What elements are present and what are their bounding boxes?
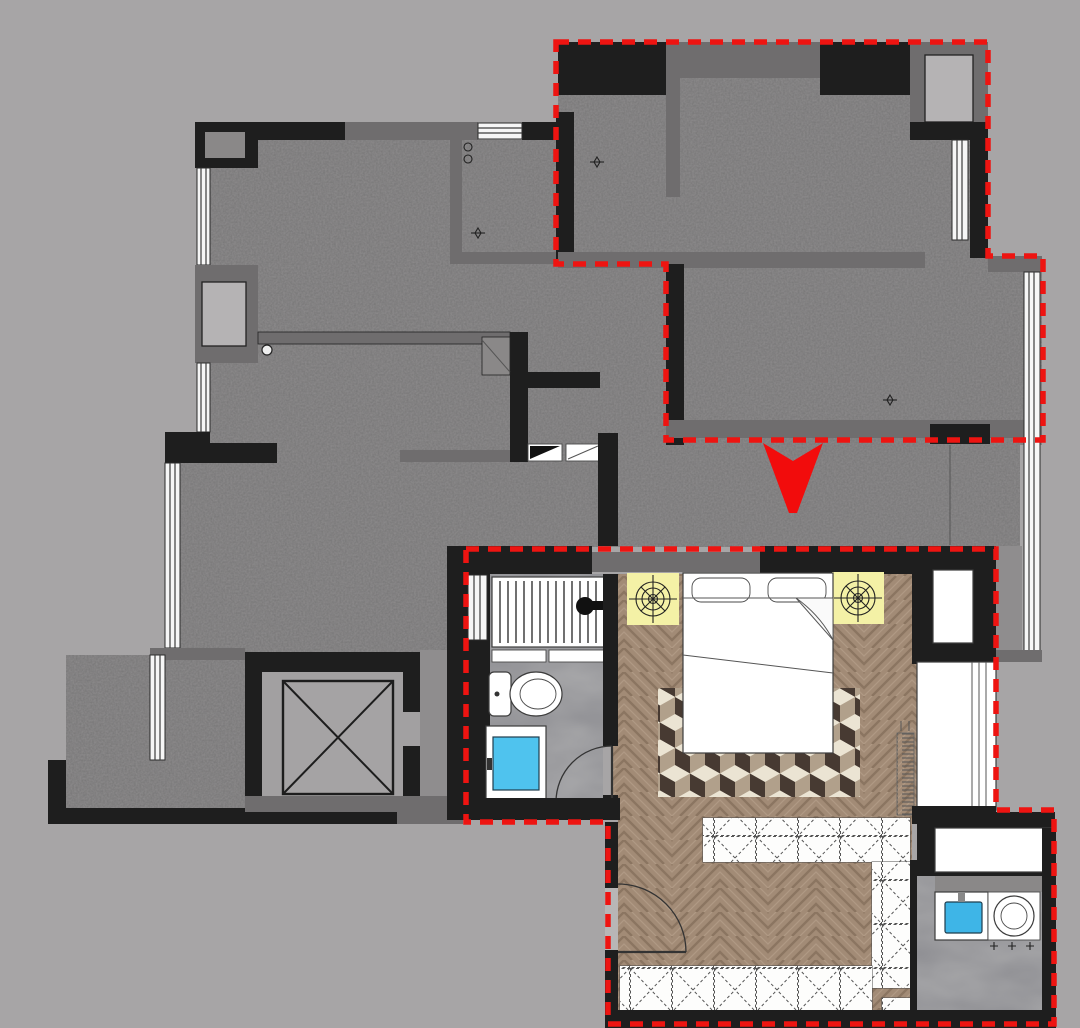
sliding-wardrobe (912, 648, 996, 824)
screenshot-stage: apartment-floor-plan-with-master-suite-d… (0, 0, 1080, 1028)
vanity-sink (945, 902, 982, 933)
ceiling-light-symbol (627, 573, 679, 625)
nightstand (933, 570, 973, 643)
shower-base (935, 828, 1052, 872)
towel-radiator (897, 721, 914, 815)
window-left-3 (165, 463, 180, 648)
window-left-4 (150, 655, 165, 760)
shower-head-icon (576, 597, 594, 615)
window-right-bay (1024, 272, 1040, 652)
window-right-top (952, 140, 968, 240)
window-top-foyer (478, 123, 522, 139)
door-pivot-icon (262, 345, 272, 355)
ensuite-bathroom (917, 812, 1056, 1028)
window-bathroom (468, 575, 487, 640)
double-bed (683, 573, 833, 753)
tap-icon (958, 893, 965, 902)
window-left-2 (197, 363, 210, 432)
window-left-1 (197, 168, 210, 265)
ceiling-light-symbol (832, 572, 884, 624)
blue-glass-door (486, 726, 546, 802)
toilet (489, 672, 562, 716)
floor-plan-canvas: apartment-floor-plan-with-master-suite-d… (0, 0, 1080, 1028)
